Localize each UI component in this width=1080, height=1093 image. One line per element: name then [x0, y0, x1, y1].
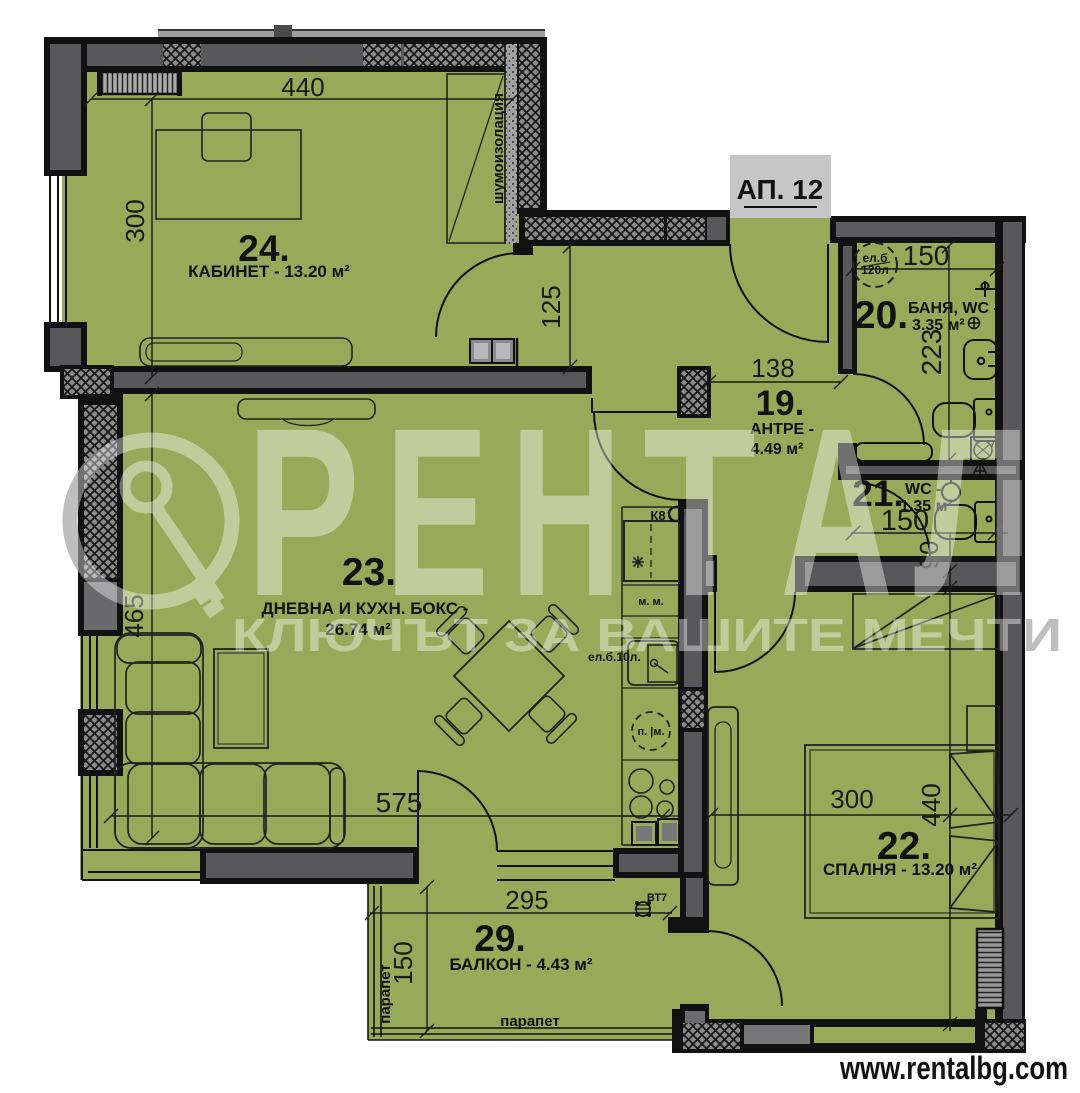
- svg-text:ВТ7: ВТ7: [647, 892, 667, 904]
- svg-text:КАБИНЕТ - 13.20 м²: КАБИНЕТ - 13.20 м²: [188, 262, 350, 281]
- svg-text:223: 223: [916, 329, 947, 376]
- svg-text:Н: Н: [510, 378, 622, 646]
- svg-text:парапет: парапет: [377, 964, 394, 1023]
- svg-text:20.: 20.: [854, 294, 908, 337]
- svg-text:Е: Е: [385, 378, 489, 646]
- svg-text:Р: Р: [246, 378, 360, 646]
- svg-text:БАЛКОН - 4.43 м²: БАЛКОН - 4.43 м²: [449, 955, 592, 974]
- svg-text:АП. 12: АП. 12: [737, 174, 824, 205]
- svg-text:440: 440: [916, 783, 946, 826]
- svg-text:шумоизолация: шумоизолация: [490, 93, 507, 204]
- svg-text:КЛЮЧЪТ ЗА ВАШИТЕ МЕЧТИ: КЛЮЧЪТ ЗА ВАШИТЕ МЕЧТИ: [232, 609, 1062, 661]
- svg-text:п. |м.: п. |м.: [637, 726, 664, 738]
- svg-text:А: А: [780, 378, 893, 646]
- svg-text:парапет: парапет: [500, 1013, 559, 1030]
- svg-text:3.35 м²: 3.35 м²: [912, 317, 965, 334]
- svg-text:Л: Л: [914, 378, 1031, 646]
- svg-text:Т: Т: [643, 378, 756, 646]
- svg-text:СПАЛНЯ - 13.20 м²: СПАЛНЯ - 13.20 м²: [823, 860, 977, 879]
- svg-text:150: 150: [903, 240, 950, 271]
- svg-text:300: 300: [120, 199, 150, 242]
- svg-text:295: 295: [505, 885, 548, 915]
- svg-text:29.: 29.: [474, 918, 525, 959]
- svg-text:575: 575: [376, 787, 423, 818]
- svg-text:120л: 120л: [861, 263, 889, 277]
- svg-text:125: 125: [536, 285, 566, 328]
- svg-text:БАНЯ, WC -: БАНЯ, WC -: [908, 300, 999, 317]
- svg-text:www.rentalbg.com: www.rentalbg.com: [839, 1050, 1068, 1086]
- svg-text:440: 440: [281, 72, 324, 102]
- svg-text:300: 300: [830, 784, 873, 814]
